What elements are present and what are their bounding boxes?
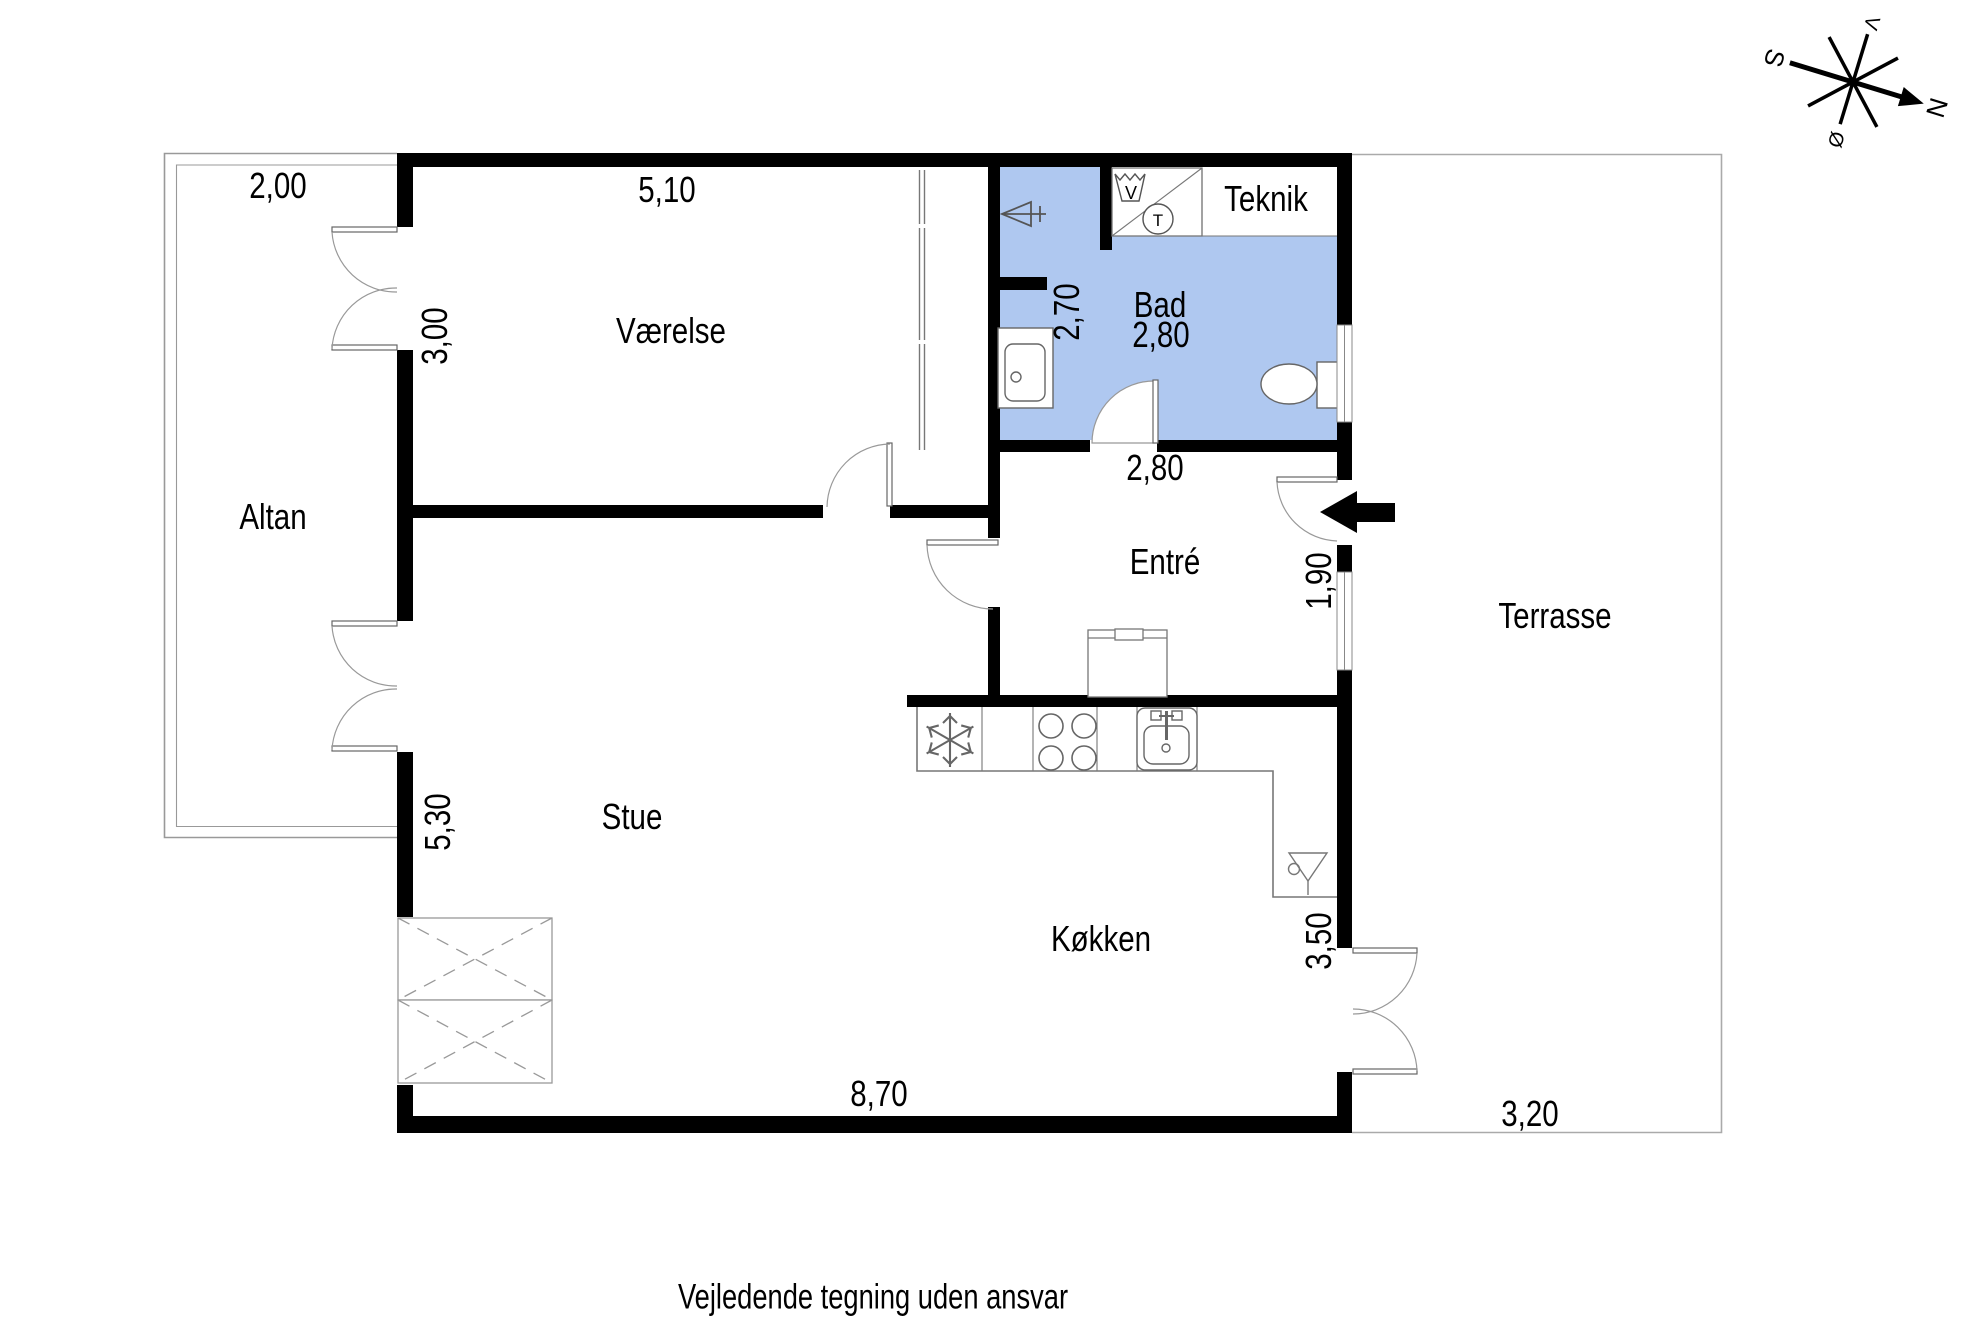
- disclaimer-caption: Vejledende tegning uden ansvar: [678, 1280, 1068, 1315]
- compass-icon: N S V Ø: [1740, 0, 1971, 177]
- compass-south-label: S: [1758, 45, 1792, 70]
- entrance-arrow-icon: [1320, 491, 1395, 533]
- compass-north-label: N: [1920, 94, 1954, 121]
- kitchen-counter: [917, 707, 1337, 897]
- kitchen-sink-icon: [1137, 708, 1197, 770]
- room-label-vaerelse: Værelse: [616, 313, 726, 349]
- wardrobe-front: [920, 170, 925, 450]
- dim-bad-width: 2,80: [1132, 317, 1189, 353]
- bad-door-swing: [1092, 381, 1155, 443]
- stove-icon: [1039, 714, 1096, 770]
- room-label-koekken: Køkken: [1051, 921, 1151, 957]
- room-label-terrasse: Terrasse: [1498, 598, 1611, 634]
- dim-entre-window: 1,90: [1301, 552, 1337, 609]
- dim-bottom-width: 8,70: [850, 1076, 907, 1112]
- room-label-stue: Stue: [602, 799, 663, 835]
- dim-koekken-depth: 3,50: [1301, 912, 1337, 969]
- entre-closet: [1088, 629, 1167, 697]
- room-label-altan: Altan: [239, 499, 306, 535]
- tumble-dryer-label: T: [1153, 211, 1163, 230]
- dim-stue-depth: 5,30: [420, 793, 456, 850]
- compass-east-label: Ø: [1823, 129, 1849, 150]
- room-label-entre: Entré: [1130, 544, 1201, 580]
- room-label-teknik: Teknik: [1224, 181, 1308, 217]
- dim-terrasse-width: 3,20: [1501, 1096, 1558, 1132]
- dim-bad-depth: 2,70: [1049, 283, 1085, 340]
- toilet-icon: [1261, 362, 1338, 408]
- fridge-snowflake-icon: [923, 713, 977, 767]
- basin-icon: [1289, 853, 1328, 895]
- dim-vaerelse-width: 5,10: [638, 172, 695, 208]
- floor-plan: V T: [0, 0, 1984, 1323]
- dim-altan-width: 2,00: [249, 168, 306, 204]
- window-entre: [1337, 572, 1352, 670]
- compass-west-label: V: [1858, 13, 1883, 33]
- dim-entre-width: 2,80: [1126, 450, 1183, 486]
- terrace-outline: [1352, 155, 1722, 1133]
- window-bad: [1337, 325, 1352, 422]
- shower-icon: [1002, 202, 1046, 226]
- dim-vaerelse-depth: 3,00: [417, 307, 453, 364]
- hatched-shaft: [398, 918, 552, 1083]
- washing-machine-label: V: [1125, 183, 1137, 203]
- bath-sink-icon: [998, 328, 1053, 408]
